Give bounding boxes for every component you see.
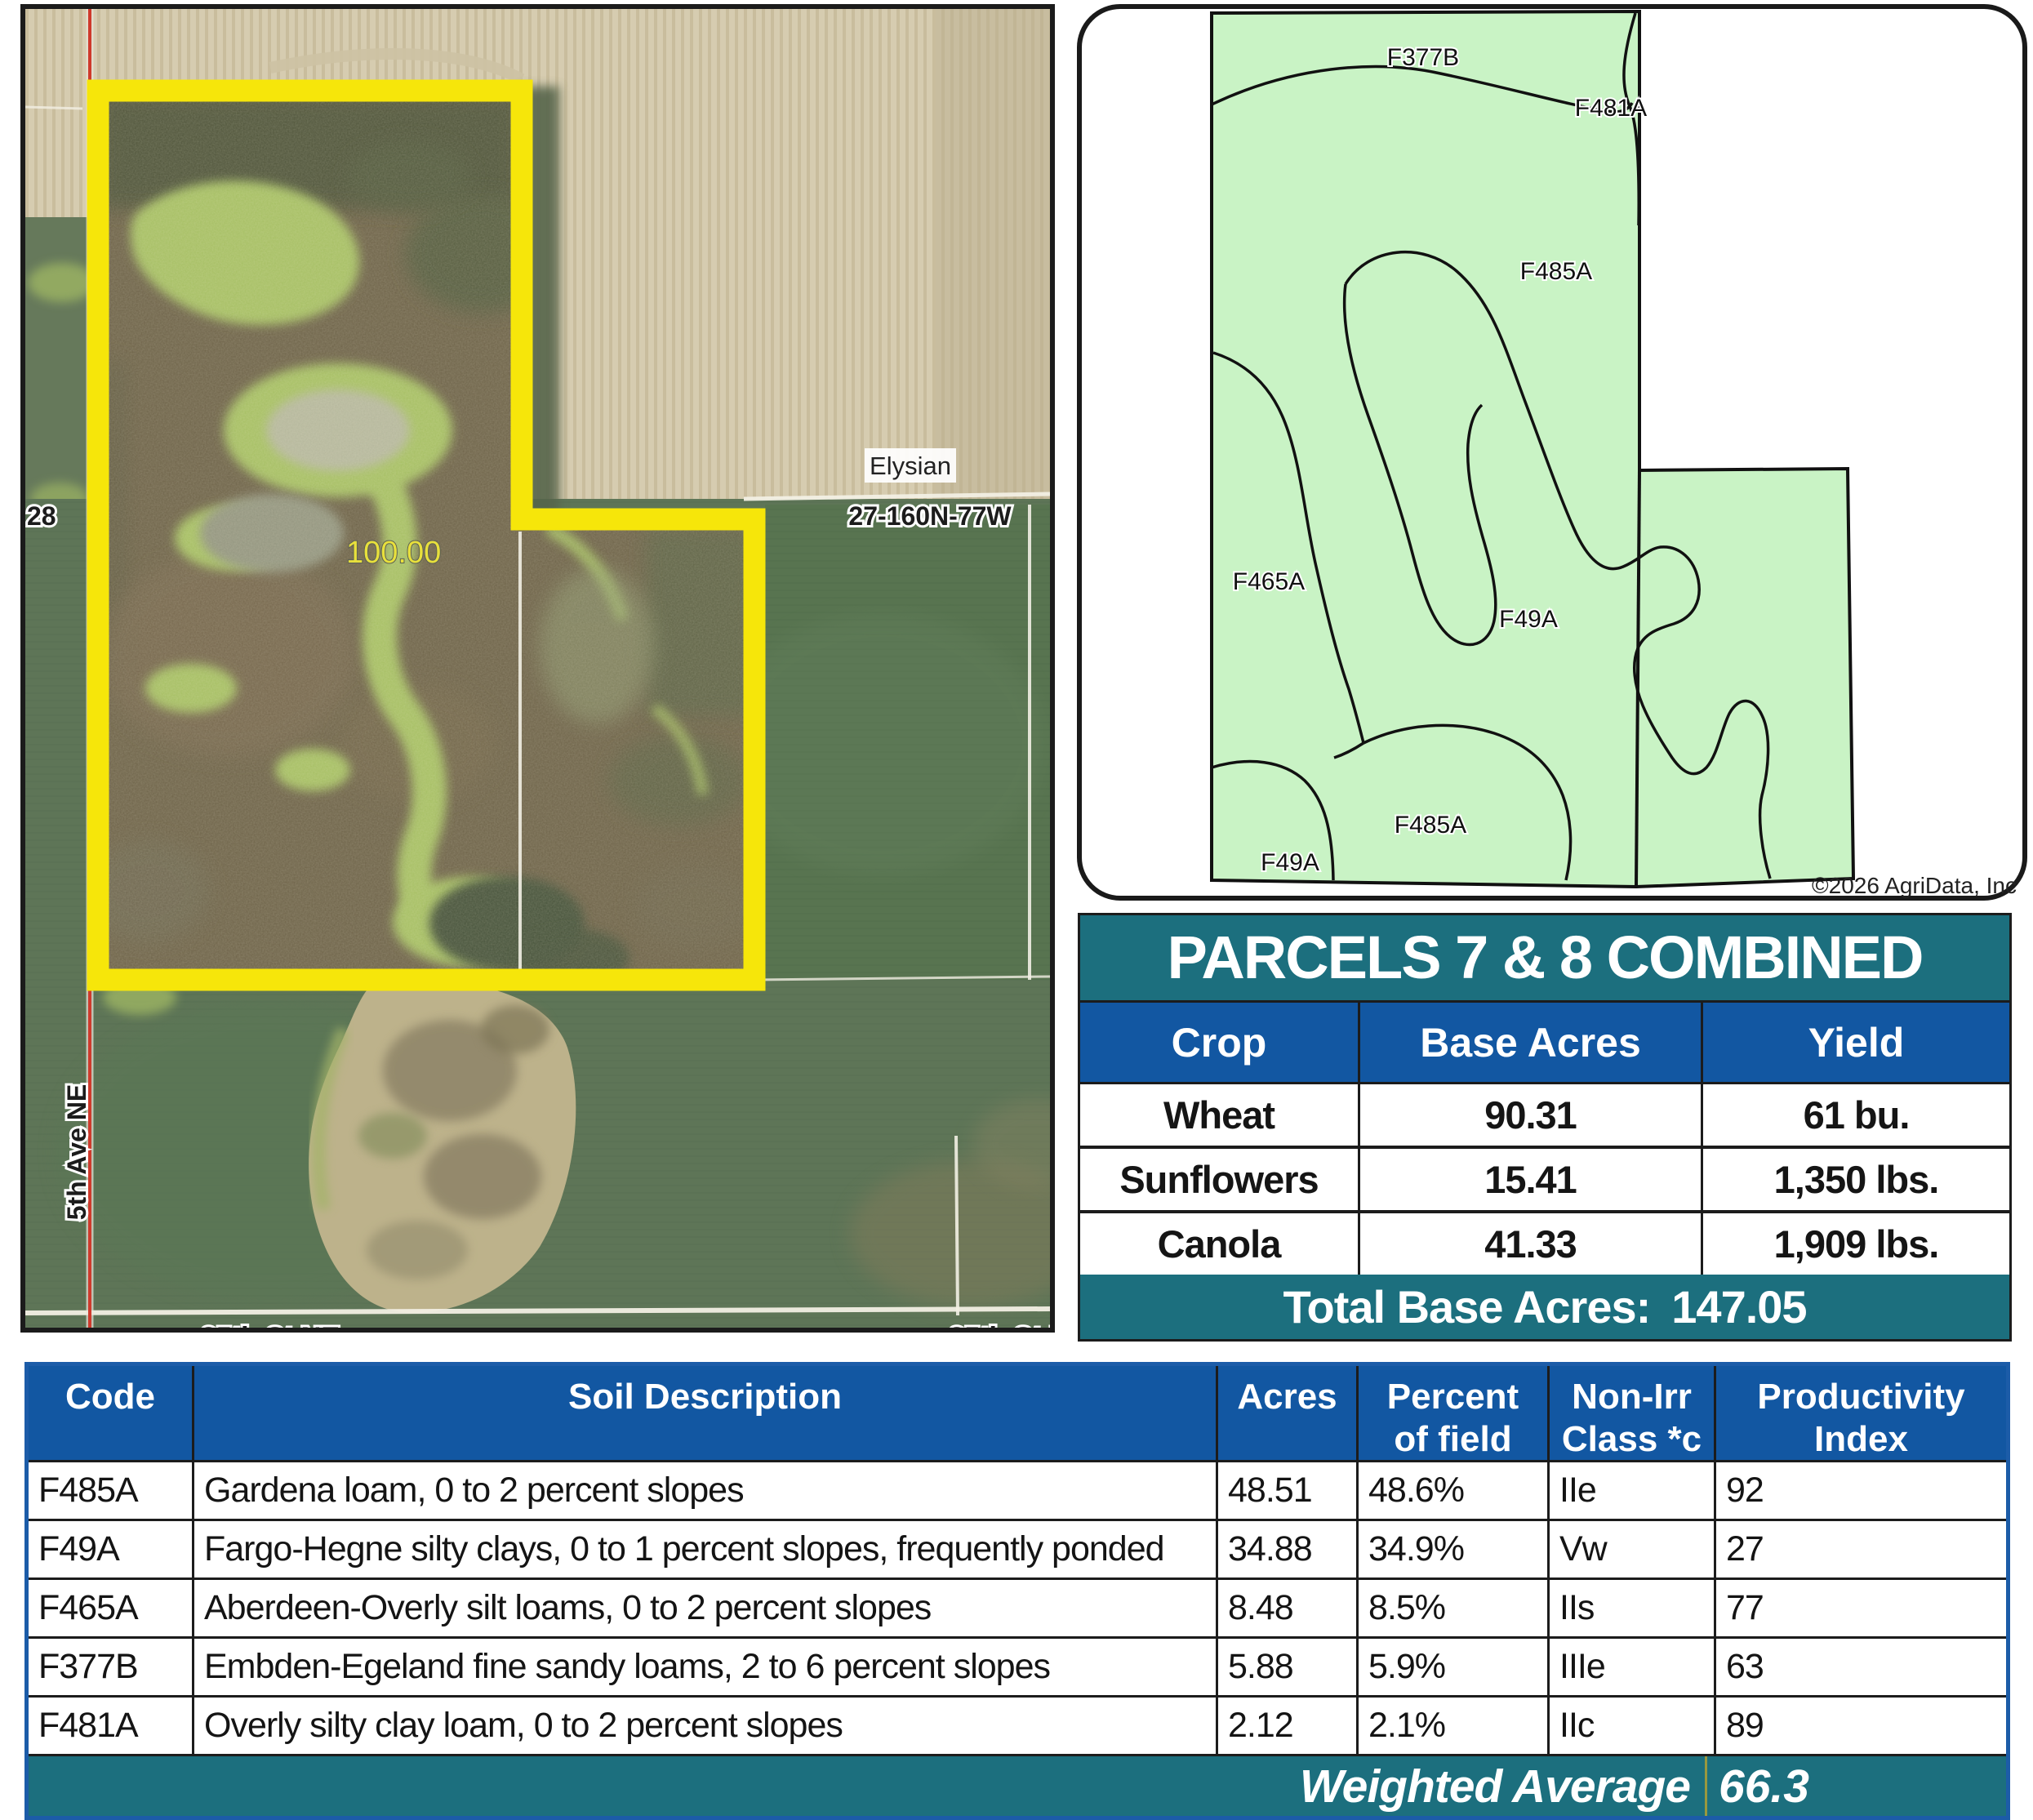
total-label: Total Base Acres: — [1283, 1280, 1650, 1333]
col-acres: Acres — [1216, 1366, 1356, 1461]
table-row: F49A Fargo-Hegne silty clays, 0 to 1 per… — [29, 1519, 2006, 1577]
soil-map: F377B F481A F485A F465A F49A F485A F49A … — [1076, 3, 2028, 901]
col-percent-of-field: Percent of field — [1356, 1366, 1547, 1461]
parcels-total-row: Total Base Acres: 147.05 — [1080, 1275, 2009, 1339]
road-bottom-right-label: 85th St N — [949, 1322, 1055, 1333]
soil-label-f377b: F377B — [1387, 44, 1459, 71]
table-row: Canola 41.33 1,909 lbs. — [1080, 1213, 2009, 1275]
col-crop: Crop — [1080, 1003, 1358, 1082]
soil-table-header: Code Soil Description Acres Percent of f… — [29, 1366, 2006, 1460]
copyright-label: ©2026 AgriData, Inc — [1812, 873, 2017, 898]
parcels-table-header: Crop Base Acres Yield — [1080, 1000, 2009, 1084]
road-bottom-left-label: 85th St NE — [201, 1322, 340, 1333]
col-non-irr-class: Non-Irr Class *c — [1547, 1366, 1714, 1461]
soil-label-f49a: F49A — [1499, 606, 1558, 633]
section-number-label: 28 — [27, 501, 56, 531]
soil-label-f481a: F481A — [1575, 95, 1647, 122]
col-yield: Yield — [1701, 1003, 2009, 1082]
table-row: Wheat 90.31 61 bu. — [1080, 1084, 2009, 1149]
weighted-average-row: Weighted Average 66.3 — [29, 1754, 2006, 1816]
weighted-average-label: Weighted Average — [29, 1760, 1705, 1813]
soil-label-f49a-south: F49A — [1261, 849, 1319, 876]
col-base-acres: Base Acres — [1358, 1003, 1701, 1082]
soil-label-f485a: F485A — [1520, 258, 1592, 285]
svg-text:Elysian: Elysian — [870, 452, 951, 480]
table-row: Sunflowers 15.41 1,350 lbs. — [1080, 1149, 2009, 1213]
trs-label: 27-160N-77W — [848, 501, 1012, 531]
col-soil-description: Soil Description — [192, 1366, 1216, 1461]
table-row: F481A Overly silty clay loam, 0 to 2 per… — [29, 1695, 2006, 1754]
aerial-map: 100.00 Elysian 27-160N-77W 28 5th Ave NE… — [20, 4, 1055, 1333]
town-label: Elysian — [865, 448, 956, 483]
table-row: F485A Gardena loam, 0 to 2 percent slope… — [29, 1460, 2006, 1519]
soil-label-f485a-south: F485A — [1395, 812, 1466, 839]
table-row: F465A Aberdeen-Overly silt loams, 0 to 2… — [29, 1577, 2006, 1636]
table-row: F377B Embden-Egeland fine sandy loams, 2… — [29, 1636, 2006, 1695]
parcels-table-title: PARCELS 7 & 8 COMBINED — [1080, 915, 2009, 1000]
soil-label-f465a: F465A — [1233, 568, 1305, 595]
col-code: Code — [29, 1366, 192, 1461]
soil-table: Code Soil Description Acres Percent of f… — [24, 1362, 2010, 1820]
col-productivity-index: Productivity Index — [1714, 1366, 2006, 1461]
parcel-acreage-label: 100.00 — [346, 536, 441, 570]
weighted-average-value: 66.3 — [1707, 1760, 2006, 1813]
total-value: 147.05 — [1671, 1280, 1806, 1333]
parcels-table: PARCELS 7 & 8 COMBINED Crop Base Acres Y… — [1078, 913, 2012, 1342]
road-left-label: 5th Ave NE — [62, 1084, 91, 1221]
